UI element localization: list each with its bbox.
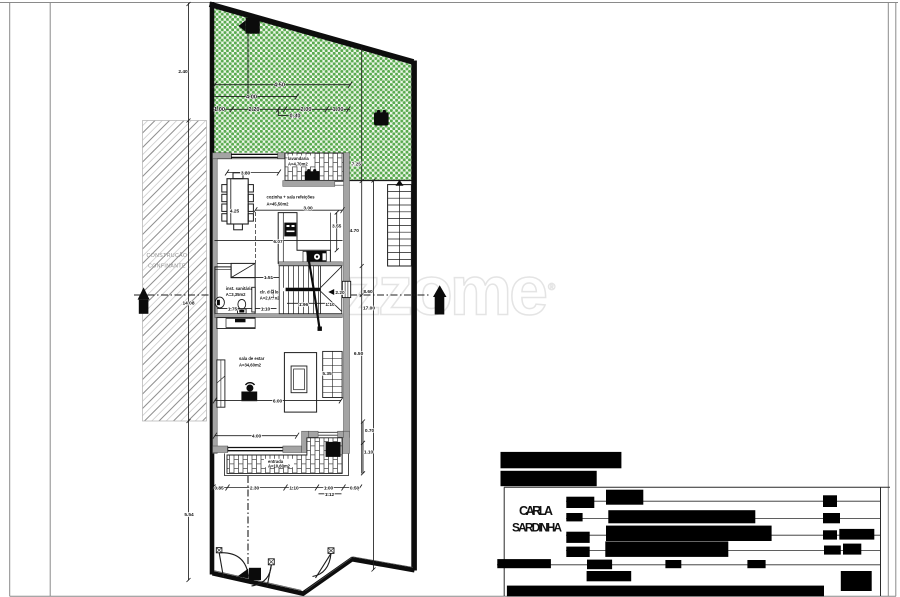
svg-text:0.85: 0.85 <box>214 485 224 491</box>
svg-text:2.20: 2.20 <box>249 107 260 113</box>
svg-text:14.08: 14.08 <box>182 301 194 307</box>
svg-text:A=10,60m2: A=10,60m2 <box>268 463 291 468</box>
svg-text:CARLA: CARLA <box>519 504 553 518</box>
svg-text:1.96: 1.96 <box>299 302 309 308</box>
svg-text:zzome: zzome <box>346 252 547 330</box>
svg-text:®: ® <box>548 282 556 293</box>
svg-text:2.20: 2.20 <box>335 290 345 296</box>
svg-text:1.10: 1.10 <box>289 485 299 491</box>
svg-text:1.00: 1.00 <box>214 107 225 113</box>
svg-text:A=45,50m2: A=45,50m2 <box>267 202 290 207</box>
svg-text:8.60: 8.60 <box>363 289 373 295</box>
svg-text:4.00: 4.00 <box>246 94 257 100</box>
svg-text:A=3,35m2: A=3,35m2 <box>226 292 246 297</box>
svg-text:4.50: 4.50 <box>274 83 285 89</box>
svg-text:2.00: 2.00 <box>301 107 312 113</box>
svg-text:A=2,60m2: A=2,60m2 <box>260 295 280 300</box>
svg-text:1.10: 1.10 <box>364 450 374 456</box>
svg-text:1.00: 1.00 <box>324 485 334 491</box>
svg-text:cozinha + sala refeições: cozinha + sala refeições <box>267 195 316 200</box>
svg-text:SARDINHA: SARDINHA <box>512 521 562 535</box>
svg-text:1.75: 1.75 <box>228 307 238 313</box>
svg-text:inst. sanitária: inst. sanitária <box>226 286 254 291</box>
svg-text:1.42: 1.42 <box>270 289 276 299</box>
svg-text:1.10: 1.10 <box>261 307 271 313</box>
svg-text:CONSTRUÇÃO: CONSTRUÇÃO <box>147 252 188 259</box>
svg-text:2.40: 2.40 <box>178 69 188 75</box>
svg-text:17.00: 17.00 <box>363 306 375 312</box>
svg-text:3.55: 3.55 <box>332 224 342 230</box>
svg-text:3.00: 3.00 <box>303 205 313 211</box>
svg-text:0.50: 0.50 <box>350 485 360 491</box>
svg-text:6.50: 6.50 <box>354 351 364 357</box>
svg-text:4.00: 4.00 <box>252 434 262 440</box>
svg-text:1.10: 1.10 <box>325 302 335 308</box>
svg-text:5.35: 5.35 <box>322 371 332 377</box>
svg-text:6.07: 6.07 <box>273 239 283 245</box>
svg-text:2.30: 2.30 <box>250 485 260 491</box>
svg-text:4.70: 4.70 <box>350 228 360 234</box>
svg-text:6.00: 6.00 <box>273 398 283 404</box>
svg-text:5.54: 5.54 <box>184 512 194 518</box>
svg-text:1.51: 1.51 <box>264 275 274 281</box>
svg-text:0.30: 0.30 <box>290 113 301 119</box>
svg-text:lavandaria: lavandaria <box>288 156 309 161</box>
svg-text:A=4,70m2: A=4,70m2 <box>288 162 308 167</box>
svg-text:4.25: 4.25 <box>230 209 240 215</box>
svg-text:0.70: 0.70 <box>365 428 375 434</box>
svg-text:A=34,60m2: A=34,60m2 <box>239 363 262 368</box>
svg-text:7.25: 7.25 <box>352 161 362 167</box>
svg-text:1.00: 1.00 <box>333 107 344 113</box>
svg-text:CONFINANTE: CONFINANTE <box>148 264 186 270</box>
svg-text:sala de estar: sala de estar <box>239 356 265 361</box>
svg-text:3.80: 3.80 <box>241 170 251 176</box>
svg-text:1.12: 1.12 <box>325 492 335 498</box>
